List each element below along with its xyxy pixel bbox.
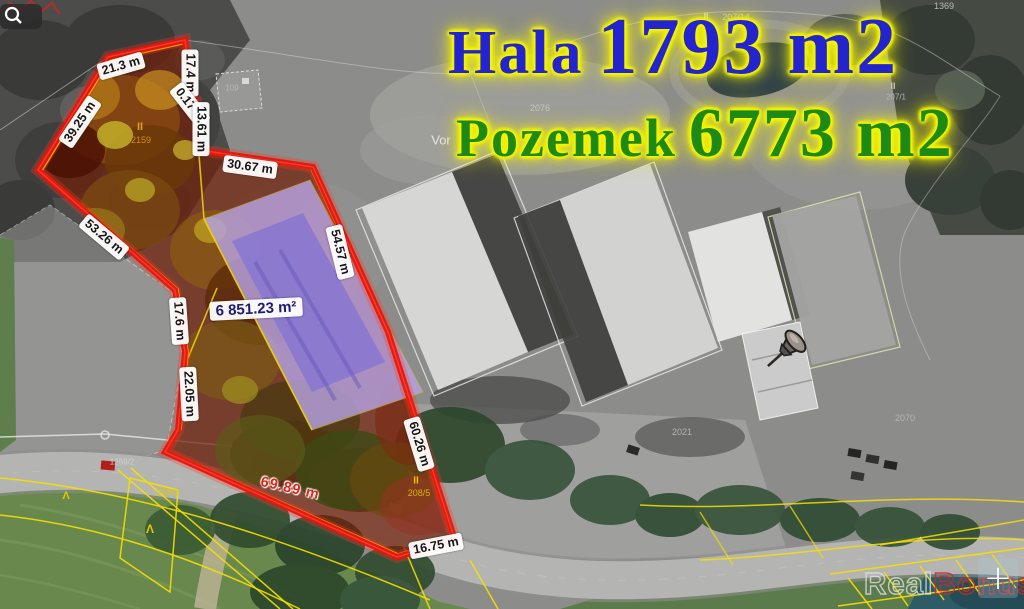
title-pozemek: Pozemek 6773 m2 [456, 94, 954, 174]
title-hala-value: 1793 m2 [597, 2, 898, 93]
cadastral-parcel-label: 2021 [672, 427, 692, 437]
cadastral-parcel-label: 2070 [895, 413, 915, 423]
cadastral-parcel-label: 208/5 [408, 488, 431, 498]
zoom-in-button[interactable]: + [978, 558, 1018, 598]
cadastral-parcel-label: II [137, 121, 143, 133]
cadastral-parcel-label: Vor [431, 133, 451, 148]
cadastral-parcel-label: 1369 [934, 1, 954, 11]
measurement-label: 17.6 m [169, 297, 189, 345]
measurement-label: 13.61 m [193, 102, 210, 156]
measurement-label: 22.05 m [179, 367, 199, 422]
search-icon [0, 4, 26, 26]
aerial-map-canvas: 21.3 m17.4 m0.17 m13.61 m39.25 m53.26 m3… [0, 0, 1024, 609]
title-pozemek-label: Pozemek [456, 107, 677, 169]
cadastral-parcel-label: II [413, 476, 419, 487]
cadastral-parcel-label: Λ [146, 522, 154, 536]
cadastral-parcel-label: 1269/2 [110, 458, 134, 467]
watermark-real: Real [864, 566, 933, 602]
cadastral-parcel-label: Λ [62, 490, 69, 502]
cadastral-parcel-label: 2159 [131, 135, 151, 145]
search-button[interactable] [0, 4, 42, 29]
title-hala: Hala 1793 m2 [448, 2, 898, 93]
title-hala-label: Hala [448, 18, 583, 89]
cadastral-parcel-label: 208/2 [157, 487, 180, 497]
title-pozemek-value: 6773 m2 [689, 94, 954, 174]
cadastral-parcel-label: 109 [225, 84, 238, 93]
